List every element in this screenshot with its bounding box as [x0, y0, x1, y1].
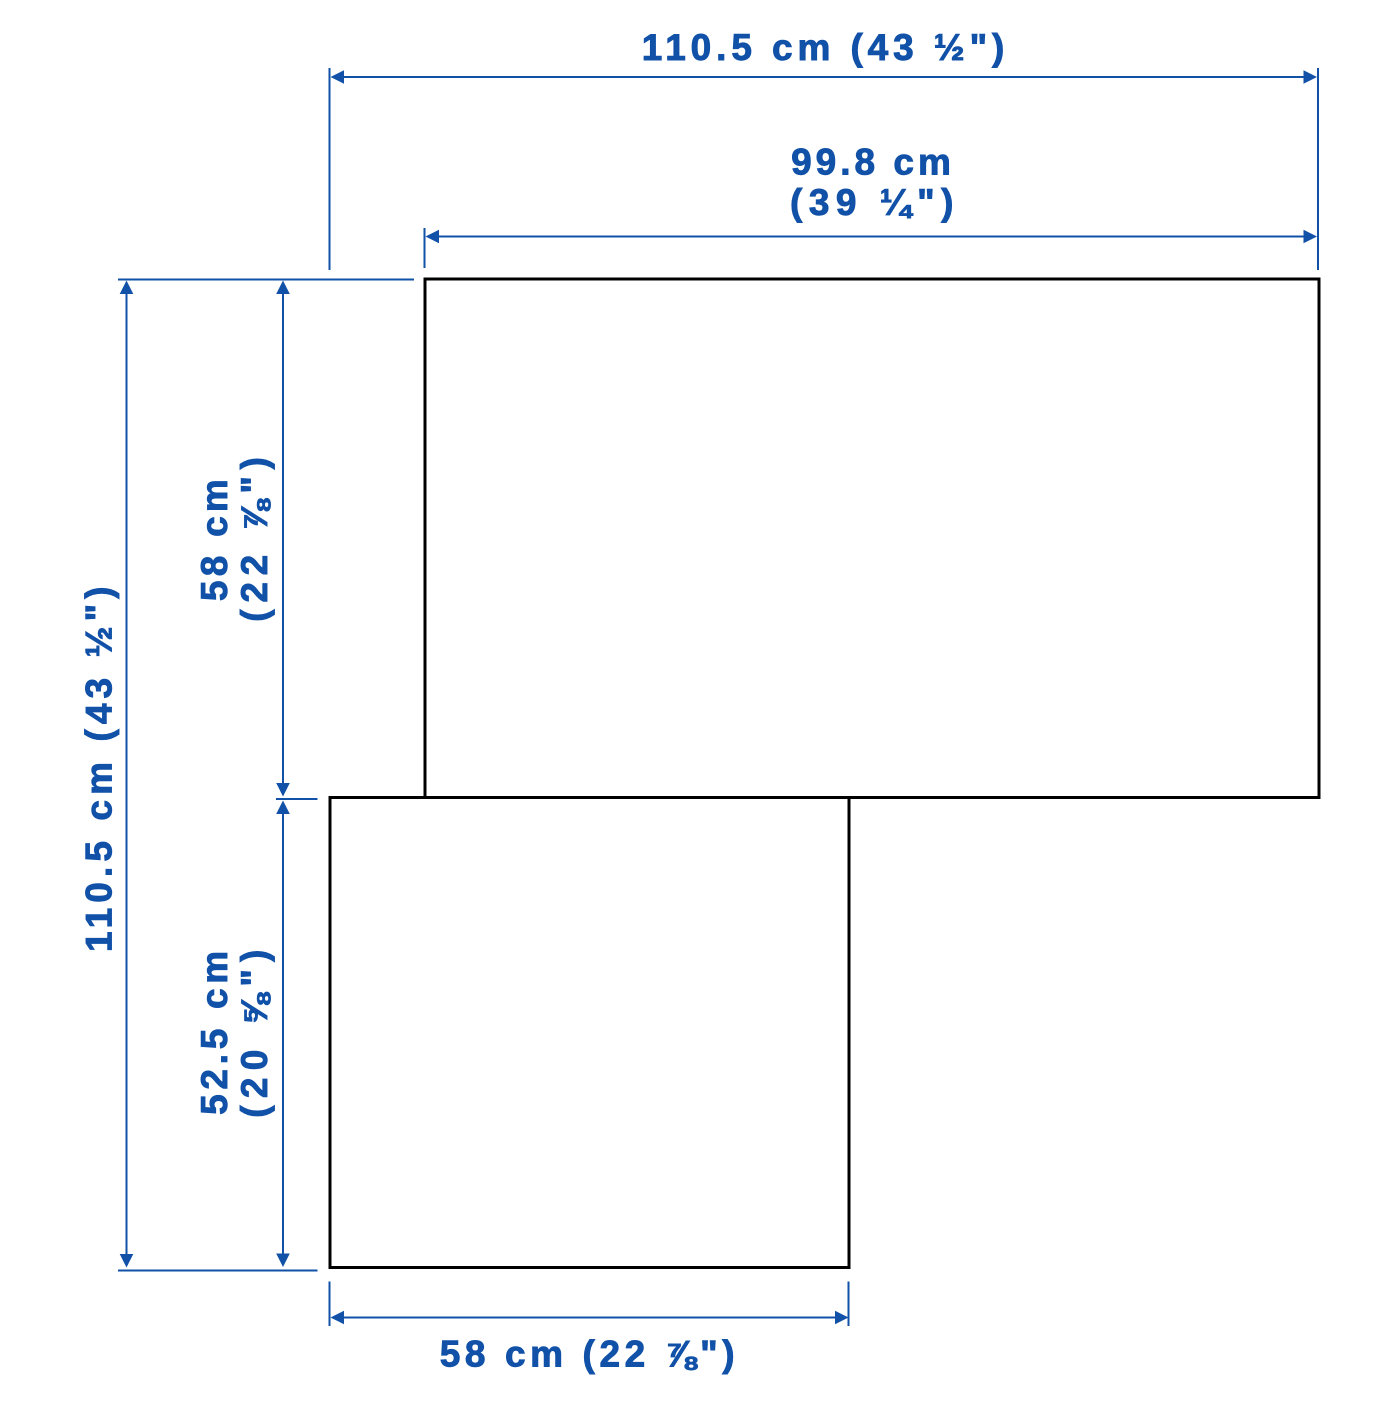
svg-text:110.5 cm (43 ½"): 110.5 cm (43 ½"): [79, 581, 120, 952]
svg-text:58 cm (22 ⅞"): 58 cm (22 ⅞"): [440, 1334, 739, 1375]
svg-text:(39 ¼"): (39 ¼"): [790, 182, 960, 223]
svg-text:58 cm: 58 cm: [194, 475, 235, 601]
svg-text:99.8 cm: 99.8 cm: [791, 142, 955, 183]
svg-text:52.5 cm: 52.5 cm: [194, 946, 235, 1115]
svg-text:110.5 cm (43 ½"): 110.5 cm (43 ½"): [642, 27, 1009, 68]
svg-text:(22 ⅞"): (22 ⅞"): [234, 450, 275, 621]
svg-text:(20 ⅝"): (20 ⅝"): [234, 942, 275, 1118]
